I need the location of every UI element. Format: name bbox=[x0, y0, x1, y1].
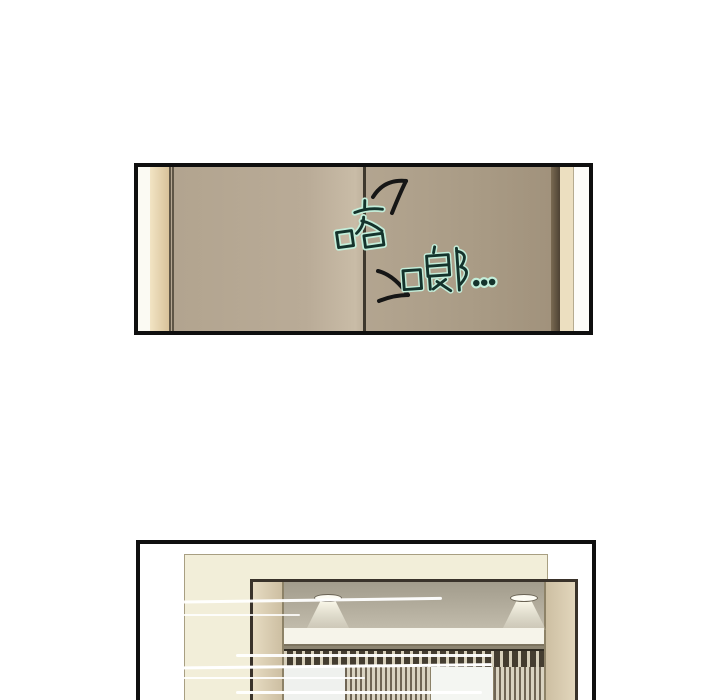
white-wall-panel-center: 叮 bbox=[430, 667, 494, 700]
sfx-lang-glyph: 啷... bbox=[398, 240, 495, 297]
light-cone bbox=[306, 600, 350, 630]
trim-line bbox=[169, 167, 171, 331]
lobby-lower-wall: 叮 bbox=[284, 667, 544, 700]
ellipsis-dots bbox=[473, 279, 496, 287]
comic-page: 喀 啷... bbox=[0, 0, 720, 700]
light-streak bbox=[140, 614, 300, 616]
doorway-pillar-right bbox=[544, 582, 575, 700]
back-wall-upper bbox=[284, 582, 544, 628]
wall-strip-left bbox=[138, 167, 150, 331]
door-frame-dark-right bbox=[551, 167, 560, 331]
light-streak bbox=[236, 654, 492, 657]
door-frame-trim-left bbox=[150, 167, 169, 331]
door-frame-trim-right bbox=[560, 167, 574, 331]
lamp-fixture bbox=[510, 594, 538, 602]
downlight-icon bbox=[502, 594, 546, 628]
white-wall-panel-left bbox=[284, 667, 345, 700]
light-cone bbox=[502, 600, 546, 630]
panel-elevator-doorway: 叮 bbox=[136, 540, 596, 700]
slatted-screen-right bbox=[494, 667, 544, 700]
wall-strip-right bbox=[574, 167, 589, 331]
sfx-ka-glyph: 喀 bbox=[326, 193, 392, 259]
light-streak bbox=[236, 691, 482, 694]
panel-door-closing: 喀 啷... bbox=[134, 163, 593, 335]
white-beam bbox=[284, 628, 544, 646]
light-streak bbox=[140, 677, 365, 679]
slatted-screen-left bbox=[345, 667, 430, 700]
